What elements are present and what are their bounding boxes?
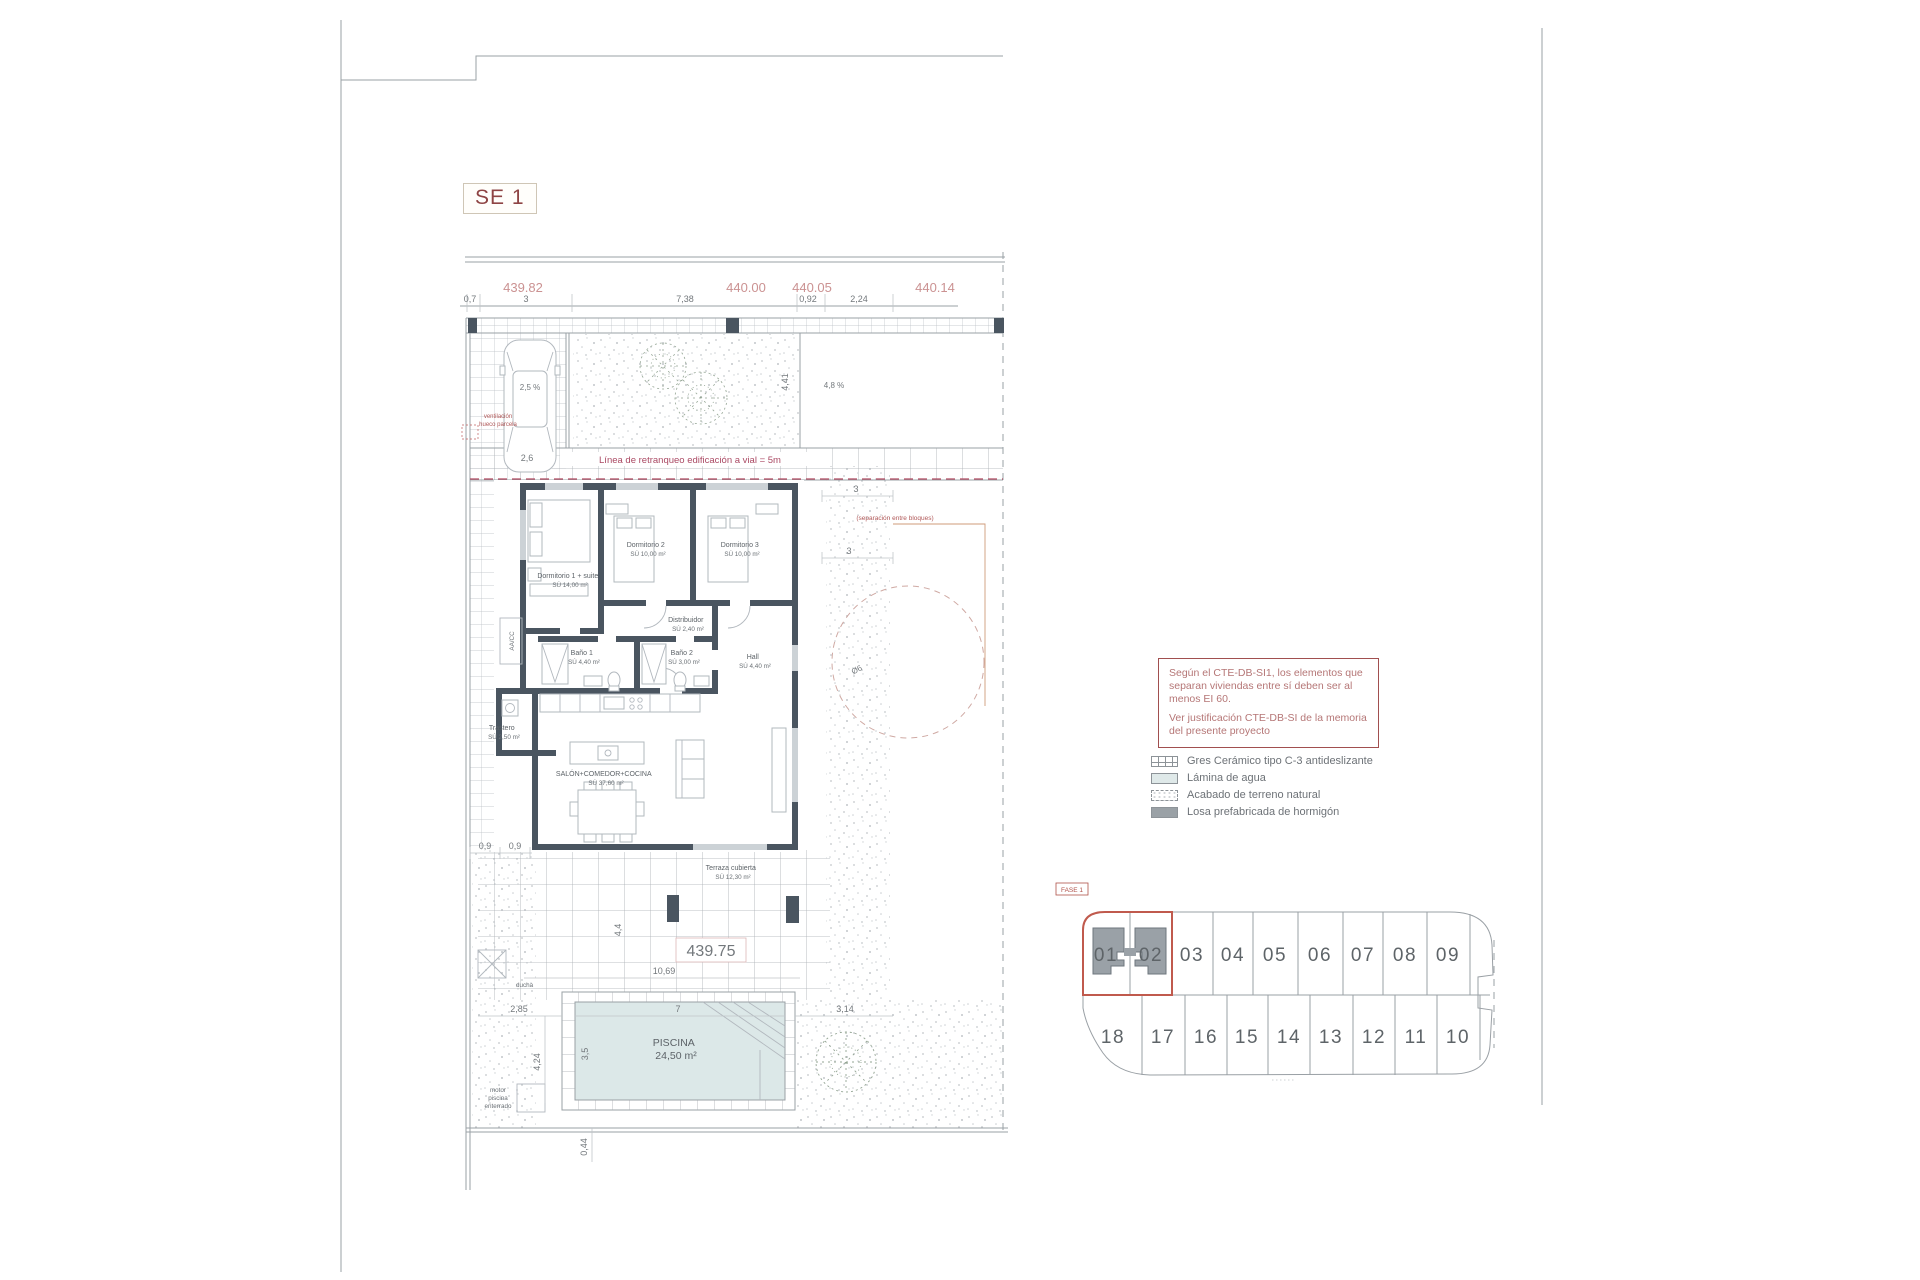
cte-note-line2: Ver justificación CTE-DB-SI de la memori… — [1169, 712, 1369, 738]
plot-number: 03 — [1180, 945, 1204, 966]
svg-text:3,5: 3,5 — [580, 1048, 590, 1061]
legend-item: Acabado de terreno natural — [1151, 789, 1373, 801]
terrace-elevation: 439.75 — [676, 938, 746, 962]
water-swatch-icon — [1151, 773, 1178, 784]
dimension-label: 0,7 — [464, 294, 477, 304]
terrace-tiles — [478, 850, 830, 1000]
svg-text:4,4: 4,4 — [613, 924, 623, 937]
svg-text:10,69: 10,69 — [653, 966, 676, 976]
kitchen-island — [570, 742, 644, 764]
plot-number: 15 — [1235, 1027, 1259, 1048]
svg-text:FASE 1: FASE 1 — [1061, 887, 1083, 894]
terrace-pillar — [786, 896, 799, 923]
terrain-swatch-icon — [1151, 790, 1178, 801]
gate-post — [468, 318, 477, 333]
svg-text:hueco parcela: hueco parcela — [479, 422, 517, 428]
sheet-code-label: SE 1 — [463, 183, 537, 214]
svg-text:3: 3 — [853, 484, 858, 494]
plot-number: 09 — [1436, 945, 1460, 966]
plot-number: 17 — [1151, 1027, 1175, 1048]
garden-slope-label: 4,8 % — [824, 381, 844, 390]
svg-text:ventilación: ventilación — [484, 414, 512, 420]
storage-appliance — [502, 700, 518, 716]
plot-number: 06 — [1308, 945, 1332, 966]
garden-depth-dim: 4,41 — [780, 373, 790, 391]
svg-text:0,9: 0,9 — [509, 841, 522, 851]
separation-note: (separación entre bloques) — [856, 515, 933, 522]
gres-swatch-icon — [1151, 756, 1178, 767]
plot-diagram: FASE 1 01 02 03 04 05 06 07 08 09 18 17 … — [1056, 883, 1494, 1080]
legend-item: Gres Cerámico tipo C-3 antideslizante — [1151, 755, 1373, 767]
concrete-swatch-icon — [1151, 807, 1178, 818]
plan-sheet: 439.82 440.00 440.05 440.14 0,7 3 7,38 0… — [0, 0, 1920, 1280]
terrace-pillar — [667, 895, 679, 922]
cte-note-box: Según el CTE-DB-SI1, los elementos que s… — [1158, 658, 1379, 748]
fase-label: FASE 1 — [1056, 883, 1088, 895]
elevation-label: 440.00 — [726, 280, 766, 295]
plot-number: 14 — [1277, 1027, 1301, 1048]
setback-label: Línea de retranqueo edificación a vial =… — [599, 455, 781, 466]
gate-post — [726, 318, 739, 333]
svg-text:0,44: 0,44 — [579, 1138, 589, 1156]
legend-item: Lámina de agua — [1151, 772, 1373, 784]
svg-text:2,85: 2,85 — [510, 1004, 528, 1014]
plot-number: 05 — [1263, 945, 1287, 966]
plot-number: 07 — [1351, 945, 1375, 966]
svg-text:enterrado: enterrado — [485, 1103, 512, 1110]
house: AA/CC Dormitorio 1 + suite SÚ 14,00 m² D… — [488, 480, 804, 852]
plot-number: 04 — [1221, 945, 1245, 966]
legend-item: Losa prefabricada de hormigón — [1151, 806, 1373, 818]
svg-text:439.75: 439.75 — [687, 943, 736, 960]
pool-side-terrain — [795, 1000, 1003, 1128]
plot-number: 08 — [1393, 945, 1417, 966]
dimension-label: 2,24 — [850, 294, 868, 304]
elevation-label: 440.05 — [792, 280, 832, 295]
site-plan-drawing: 439.82 440.00 440.05 440.14 0,7 3 7,38 0… — [0, 0, 1920, 1280]
pool-label: PISCINA 24,50 m² — [653, 1033, 699, 1062]
dining-table — [570, 782, 644, 842]
plot-number: 02 — [1139, 945, 1163, 966]
svg-text:piscina: piscina — [488, 1095, 508, 1102]
elevation-label: 440.14 — [915, 280, 955, 295]
sofa-icon — [676, 740, 704, 798]
dimension-label: 7,38 — [676, 294, 694, 304]
materials-legend: Gres Cerámico tipo C-3 antideslizante Lá… — [1151, 755, 1373, 823]
top-dimension-line: 439.82 440.00 440.05 440.14 0,7 3 7,38 0… — [460, 280, 958, 312]
elevation-label: 439.82 — [503, 280, 543, 295]
dimension-label: 0,92 — [799, 294, 817, 304]
driveway-slope-label: 2,5 % — [520, 383, 540, 392]
kitchen-counter — [540, 694, 700, 712]
svg-text:0,9: 0,9 — [479, 841, 492, 851]
tv-cabinet — [772, 728, 786, 812]
ducha-label: ducha — [516, 982, 534, 989]
svg-text:3,14: 3,14 — [836, 1004, 854, 1014]
plot-number: 12 — [1362, 1027, 1386, 1048]
svg-text:motor: motor — [490, 1087, 506, 1094]
plot-number: 01 — [1094, 945, 1118, 966]
plot-number: 11 — [1405, 1027, 1428, 1048]
svg-text:4,24: 4,24 — [532, 1053, 542, 1071]
aacc-label: AA/CC — [509, 631, 516, 651]
plot-number: 16 — [1194, 1027, 1218, 1048]
plot-number: 18 — [1101, 1027, 1125, 1048]
svg-text:7: 7 — [675, 1004, 680, 1014]
plot-number: 13 — [1319, 1027, 1343, 1048]
svg-text:3: 3 — [846, 546, 851, 556]
dimension-label: 3 — [523, 294, 528, 304]
plot-number: 10 — [1446, 1027, 1470, 1048]
driveway-width-label: 2,6 — [521, 453, 534, 463]
gate-post — [994, 318, 1004, 333]
gravel-area — [573, 334, 800, 446]
cte-note-line1: Según el CTE-DB-SI1, los elementos que s… — [1169, 667, 1369, 705]
